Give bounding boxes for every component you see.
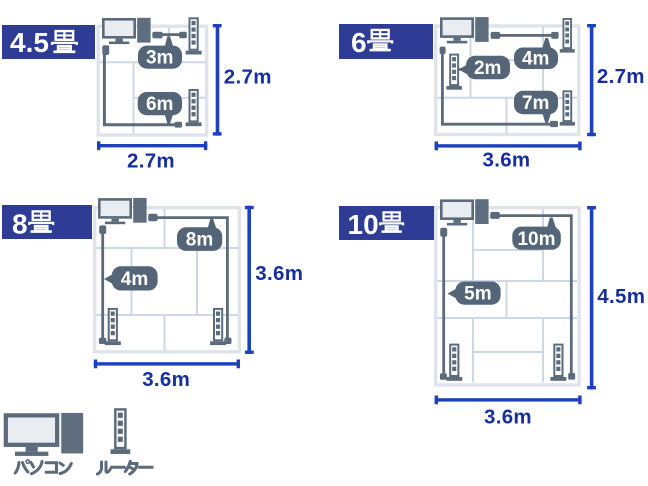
svg-text:2.7m: 2.7m: [224, 65, 272, 88]
svg-text:4m: 4m: [121, 269, 148, 290]
svg-text:3.6m: 3.6m: [484, 405, 532, 428]
svg-text:2m: 2m: [474, 58, 501, 79]
svg-text:10m: 10m: [517, 229, 555, 250]
svg-text:6: 6: [351, 27, 367, 58]
svg-text:6m: 6m: [146, 94, 173, 115]
svg-text:2.7m: 2.7m: [127, 149, 175, 172]
svg-text:3m: 3m: [146, 48, 173, 69]
svg-text:4.5: 4.5: [10, 27, 49, 58]
svg-text:3.6m: 3.6m: [483, 148, 531, 171]
svg-text:3.6m: 3.6m: [255, 262, 303, 285]
svg-text:8: 8: [12, 208, 28, 239]
svg-text:7m: 7m: [522, 93, 549, 114]
svg-text:5m: 5m: [464, 284, 491, 305]
svg-text:8m: 8m: [186, 230, 213, 251]
svg-text:10: 10: [348, 209, 379, 240]
svg-text:3.6m: 3.6m: [142, 368, 190, 391]
svg-text:2.7m: 2.7m: [597, 65, 645, 88]
svg-text:4.5m: 4.5m: [597, 285, 645, 308]
svg-text:4m: 4m: [522, 49, 549, 70]
